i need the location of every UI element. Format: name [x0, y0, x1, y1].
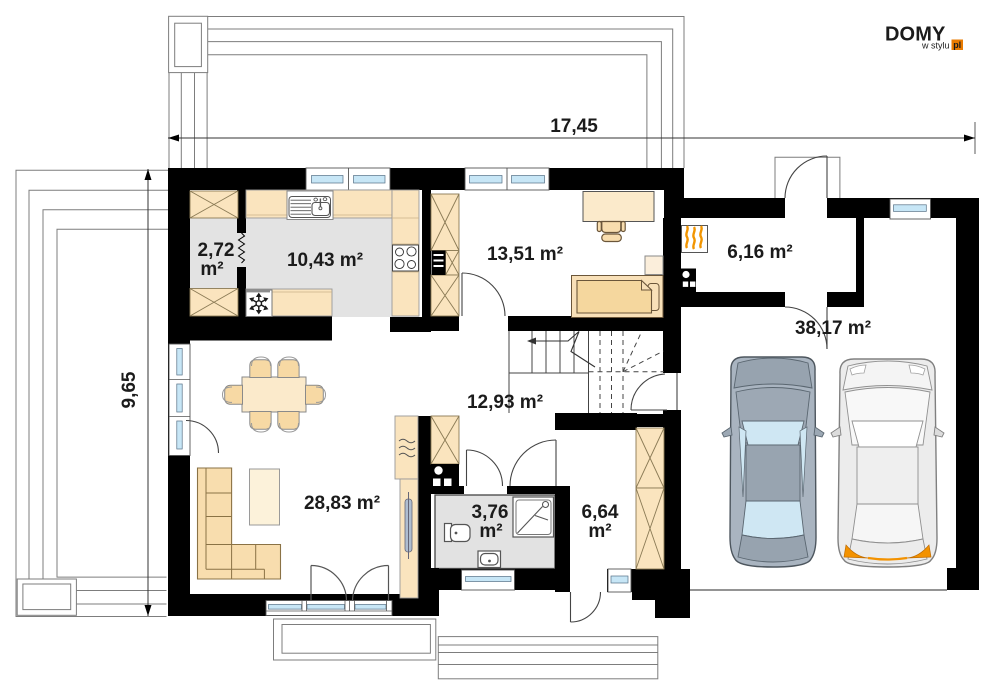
- svg-text:10,43 m²: 10,43 m²: [287, 250, 363, 271]
- svg-text:pl: pl: [953, 40, 961, 50]
- svg-text:13,51 m²: 13,51 m²: [487, 244, 563, 265]
- svg-text:12,93 m²: 12,93 m²: [467, 392, 543, 413]
- svg-text:6,64: 6,64: [582, 502, 619, 523]
- svg-text:38,17 m²: 38,17 m²: [795, 318, 871, 339]
- svg-text:2,72: 2,72: [198, 240, 235, 261]
- svg-text:28,83 m²: 28,83 m²: [304, 493, 380, 514]
- svg-text:w stylu: w stylu: [921, 41, 950, 51]
- svg-text:m²: m²: [200, 259, 223, 280]
- svg-text:9,65: 9,65: [119, 371, 140, 408]
- svg-text:17,45: 17,45: [550, 116, 598, 137]
- svg-text:m²: m²: [588, 521, 611, 542]
- svg-text:3,76: 3,76: [472, 502, 509, 523]
- svg-text:m²: m²: [479, 521, 502, 542]
- svg-text:6,16 m²: 6,16 m²: [727, 242, 792, 263]
